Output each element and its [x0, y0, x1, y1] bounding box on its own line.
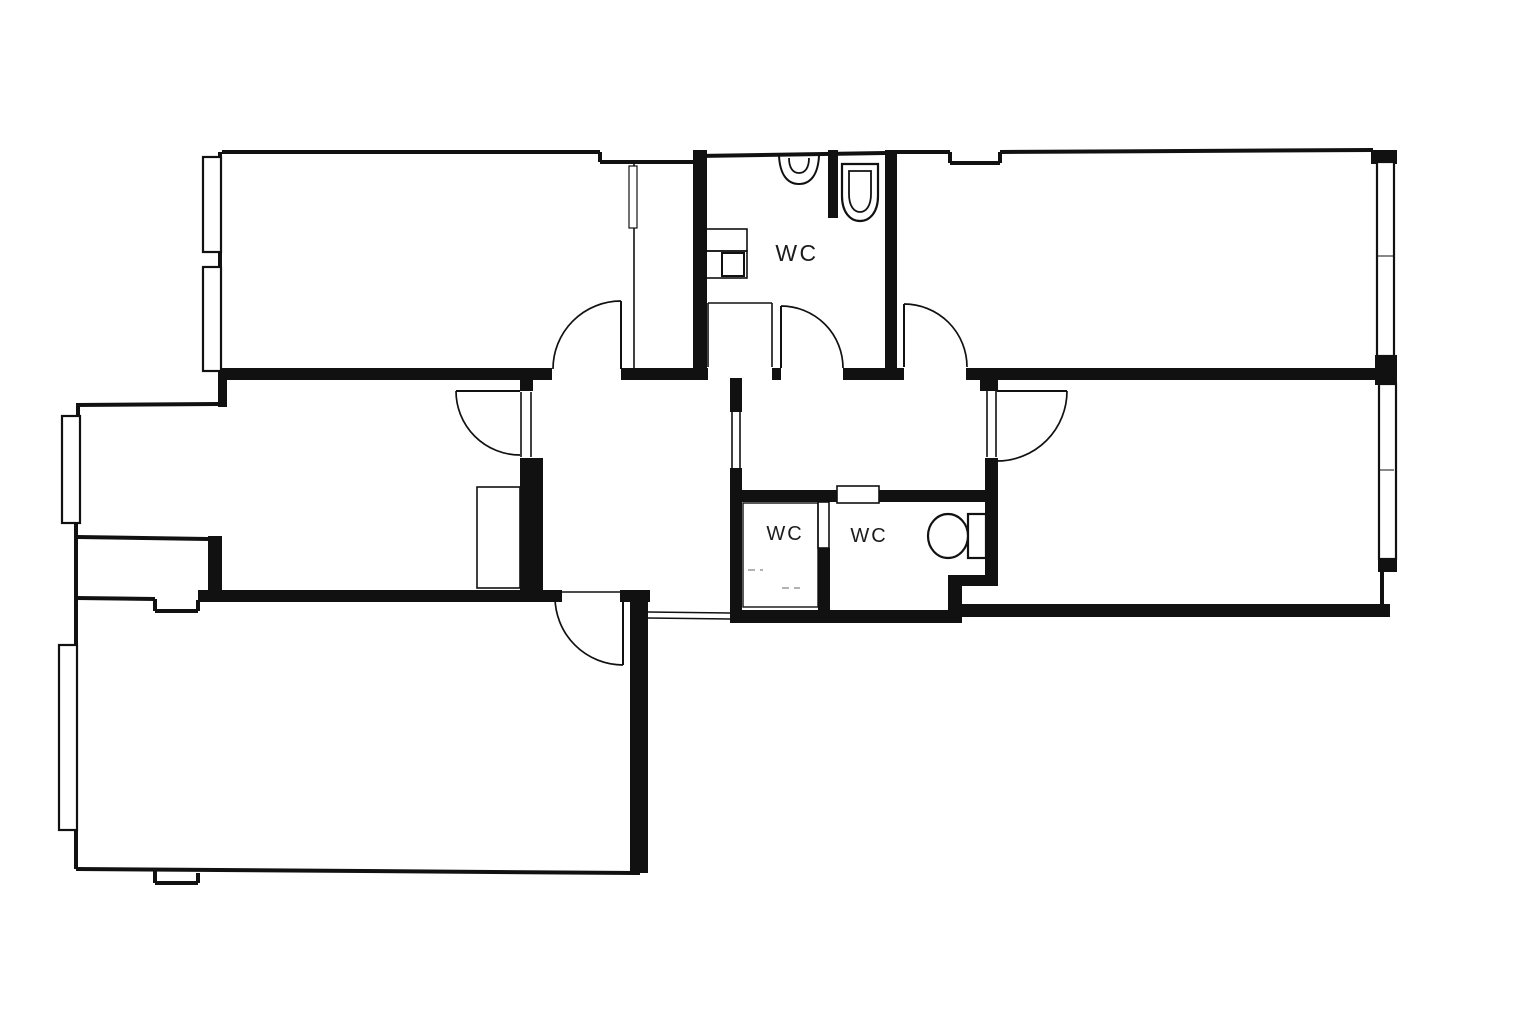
wall-thick [828, 150, 838, 218]
wall-thick [730, 610, 962, 623]
floor-plan-page: WCWCWC [0, 0, 1536, 1024]
wall-thin-line [648, 612, 730, 613]
wall-thick [980, 378, 998, 391]
wall-thick [218, 368, 227, 407]
wall-outline [77, 537, 208, 539]
wall-thick [638, 368, 708, 380]
room-label-wc: WC [850, 525, 887, 547]
wall-outline [76, 598, 155, 599]
wall-thick [621, 368, 638, 380]
wall-thick [885, 150, 897, 368]
window [203, 157, 221, 252]
room-label-wc: WC [775, 240, 818, 266]
toilet-right-bowl [928, 514, 968, 558]
wall-thick [198, 590, 562, 602]
wall-thick [1375, 355, 1397, 385]
room-label-wc: WC [766, 523, 803, 545]
wall-thick [742, 490, 838, 502]
wall-thick [730, 378, 742, 412]
window [59, 645, 77, 830]
wall-thick [966, 368, 1377, 380]
wall-thick [208, 536, 222, 592]
wall-thick [878, 490, 998, 502]
wall-thick [520, 458, 543, 590]
wall-thick [730, 468, 742, 623]
window [203, 267, 221, 371]
wc-door-recess [837, 486, 879, 503]
wall-thick [218, 368, 552, 380]
wall-outline [1000, 150, 1373, 152]
closet-door-jamb [629, 166, 637, 228]
wall-thick [772, 368, 781, 380]
wall-thick [630, 597, 648, 873]
window [1379, 384, 1396, 559]
wall-outline [76, 404, 218, 405]
window [1377, 162, 1394, 356]
wall-thick [843, 368, 904, 380]
toilet-tank [968, 514, 986, 558]
wall-thick [962, 604, 1390, 617]
wall-thick [520, 371, 533, 391]
wc-door-leaf [818, 502, 829, 548]
wall-thin-line [648, 618, 730, 619]
window [62, 416, 80, 523]
washer [722, 253, 744, 276]
floor-plan: WCWCWC [0, 0, 1536, 1024]
wall-thick [818, 548, 830, 613]
